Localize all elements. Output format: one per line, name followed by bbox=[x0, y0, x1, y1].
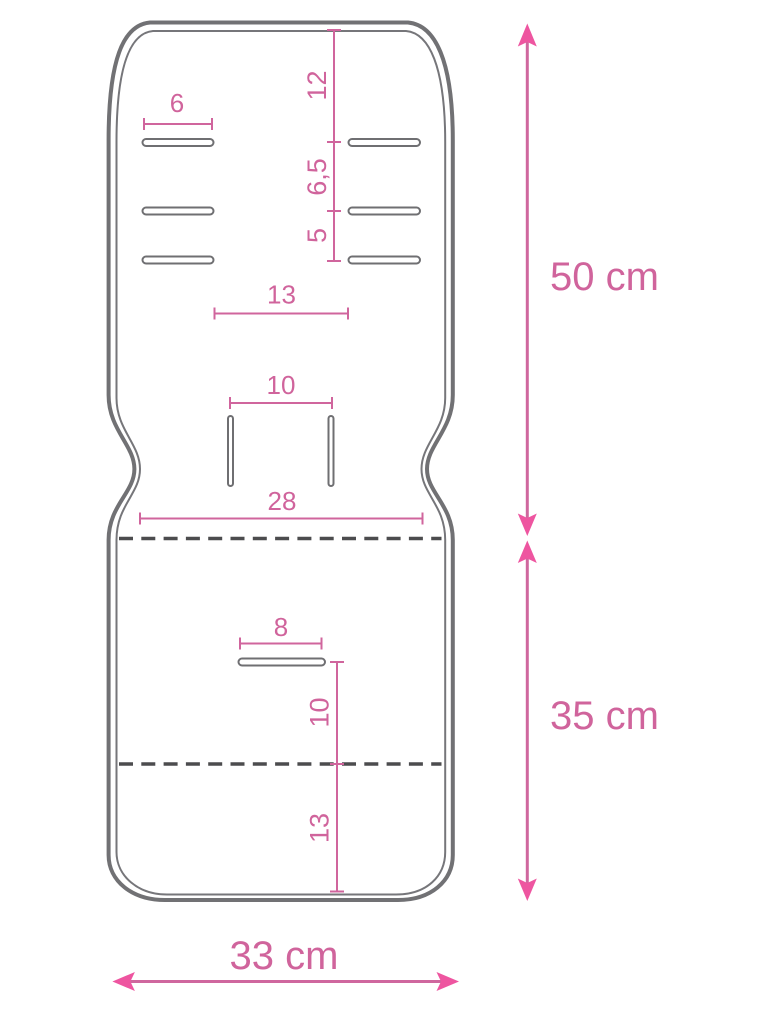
svg-text:28: 28 bbox=[268, 486, 297, 516]
svg-text:6: 6 bbox=[170, 88, 184, 118]
svg-text:50 cm: 50 cm bbox=[550, 255, 659, 299]
svg-text:13: 13 bbox=[305, 813, 335, 843]
svg-text:10: 10 bbox=[267, 370, 296, 400]
svg-text:35 cm: 35 cm bbox=[550, 694, 659, 738]
svg-text:6,5: 6,5 bbox=[302, 158, 332, 196]
svg-text:10: 10 bbox=[305, 697, 335, 727]
svg-text:13: 13 bbox=[267, 280, 296, 310]
svg-text:33 cm: 33 cm bbox=[230, 934, 339, 978]
svg-text:8: 8 bbox=[274, 612, 288, 642]
svg-text:12: 12 bbox=[302, 70, 332, 100]
svg-text:5: 5 bbox=[302, 228, 332, 243]
